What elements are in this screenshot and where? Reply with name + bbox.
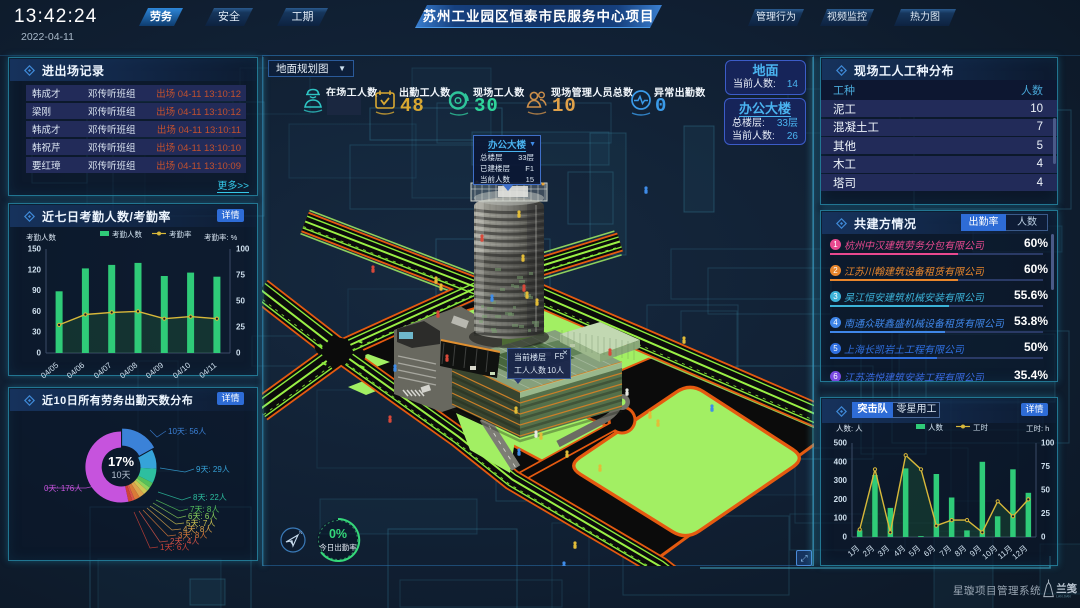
- svg-text:400: 400: [834, 457, 848, 466]
- svg-text:04/11: 04/11: [198, 360, 219, 380]
- svg-text:300: 300: [834, 476, 848, 485]
- svg-text:17%: 17%: [108, 454, 134, 469]
- svg-text:人数: 人数: [928, 422, 943, 432]
- svg-text:8天: 22人: 8天: 22人: [193, 493, 227, 502]
- svg-text:兰笺: 兰笺: [1056, 582, 1077, 595]
- svg-text:8月: 8月: [953, 544, 968, 559]
- svg-text:04/10: 04/10: [171, 360, 193, 380]
- svg-text:500: 500: [834, 439, 848, 448]
- svg-text:50: 50: [236, 297, 245, 306]
- svg-text:04/09: 04/09: [144, 360, 166, 380]
- svg-text:1月: 1月: [846, 544, 861, 559]
- svg-text:人数: 人: 人数: 人: [836, 423, 863, 433]
- svg-text:考勤率: %: 考勤率: %: [204, 232, 238, 242]
- svg-text:04/06: 04/06: [65, 360, 87, 380]
- svg-text:N: N: [299, 530, 302, 535]
- svg-text:75: 75: [236, 271, 245, 280]
- svg-text:10天: 10天: [111, 470, 130, 480]
- svg-text:120: 120: [28, 265, 42, 274]
- svg-text:11月: 11月: [996, 544, 1014, 561]
- svg-text:考勤人数: 考勤人数: [112, 229, 142, 239]
- svg-text:考勤人数: 考勤人数: [26, 232, 56, 242]
- svg-text:工时: 工时: [973, 422, 988, 432]
- svg-text:今日出勤率: 今日出勤率: [319, 542, 357, 552]
- svg-text:0: 0: [1041, 533, 1046, 542]
- svg-text:100: 100: [236, 245, 250, 254]
- svg-text:考勤率: 考勤率: [169, 229, 192, 239]
- svg-text:25: 25: [236, 323, 245, 332]
- svg-text:04/08: 04/08: [118, 360, 140, 380]
- svg-text:0: 0: [843, 533, 848, 542]
- svg-text:60: 60: [32, 307, 41, 316]
- svg-text:LAN JIAN: LAN JIAN: [1056, 595, 1071, 599]
- svg-text:30: 30: [32, 328, 41, 337]
- svg-text:4月: 4月: [892, 544, 907, 559]
- svg-text:2月: 2月: [861, 544, 876, 559]
- svg-text:1天: 6人: 1天: 6人: [160, 543, 189, 552]
- svg-text:200: 200: [834, 495, 848, 504]
- svg-text:6月: 6月: [922, 544, 937, 559]
- svg-text:3月: 3月: [876, 544, 891, 559]
- svg-text:75: 75: [1041, 462, 1050, 471]
- svg-text:04/05: 04/05: [39, 360, 61, 380]
- svg-text:5月: 5月: [907, 544, 922, 559]
- svg-text:0: 0: [37, 349, 42, 358]
- svg-text:12月: 12月: [1011, 544, 1030, 562]
- svg-text:04/07: 04/07: [92, 360, 114, 380]
- svg-text:工时: h: 工时: h: [1026, 423, 1049, 433]
- svg-text:25: 25: [1041, 509, 1050, 518]
- svg-text:100: 100: [834, 514, 848, 523]
- svg-text:0: 0: [236, 349, 241, 358]
- svg-text:7月: 7月: [938, 544, 953, 559]
- svg-text:150: 150: [28, 245, 42, 254]
- svg-text:10天: 56人: 10天: 56人: [168, 427, 206, 436]
- svg-text:100: 100: [1041, 439, 1055, 448]
- svg-text:0%: 0%: [329, 527, 347, 541]
- svg-text:90: 90: [32, 286, 41, 295]
- svg-text:9天: 29人: 9天: 29人: [196, 465, 230, 474]
- svg-text:50: 50: [1041, 486, 1050, 495]
- svg-text:0天: 176人: 0天: 176人: [44, 484, 82, 493]
